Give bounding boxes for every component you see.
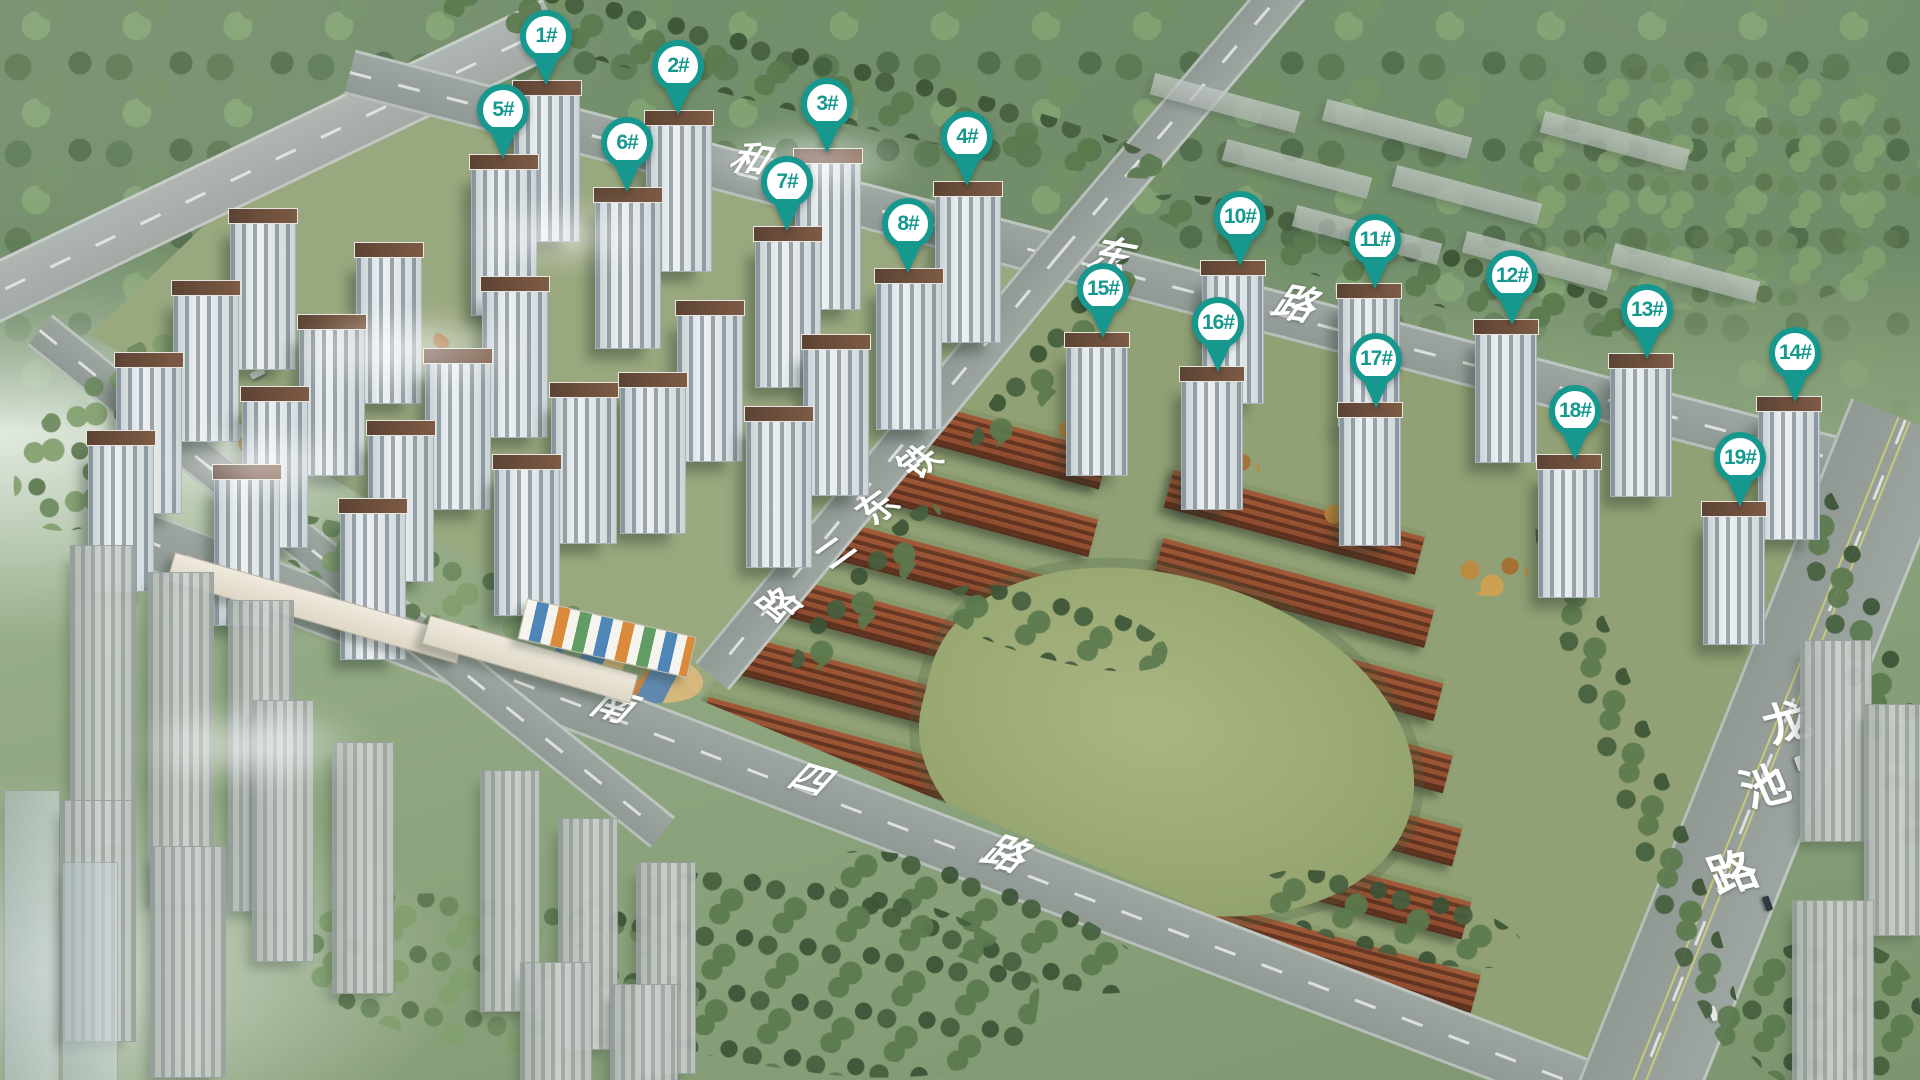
fog-streak	[90, 690, 410, 800]
pin-tail-icon	[812, 121, 842, 153]
pin-label: 19#	[1724, 446, 1756, 470]
building-pin-11[interactable]: 11#	[1349, 214, 1401, 289]
pin-label: 12#	[1496, 264, 1528, 288]
pin-label: 2#	[667, 54, 688, 78]
pin-label: 3#	[816, 92, 837, 116]
pin-tail-icon	[1725, 475, 1755, 507]
pin-label: 6#	[616, 131, 637, 155]
pin-label: 8#	[897, 212, 918, 236]
building-pin-2[interactable]: 2#	[652, 40, 704, 115]
fog-streak	[250, 300, 570, 400]
building-tower	[746, 416, 812, 568]
pin-tail-icon	[952, 154, 982, 186]
pin-tail-icon	[1361, 376, 1391, 408]
pin-label: 11#	[1360, 228, 1391, 252]
building-tower	[1181, 376, 1243, 510]
pin-tail-icon	[531, 53, 561, 85]
pin-label: 7#	[776, 170, 797, 194]
building-pin-3[interactable]: 3#	[801, 78, 853, 153]
fog-streak	[430, 195, 690, 275]
city-building	[150, 846, 226, 1078]
building-tower	[1475, 329, 1537, 463]
city-building	[1792, 900, 1874, 1080]
city-building	[1800, 640, 1872, 842]
building-pin-15[interactable]: 15#	[1077, 263, 1129, 338]
pin-tail-icon	[1088, 306, 1118, 338]
city-building	[610, 984, 678, 1080]
pin-tail-icon	[1203, 340, 1233, 372]
pin-tail-icon	[1560, 428, 1590, 460]
building-tower	[1339, 412, 1401, 546]
pin-tail-icon	[1360, 257, 1390, 289]
pin-tail-icon	[663, 83, 693, 115]
city-building	[62, 862, 118, 1080]
pin-label: 4#	[956, 125, 977, 149]
pin-tail-icon	[488, 127, 518, 159]
building-tower	[1610, 363, 1672, 497]
building-tower	[620, 382, 686, 534]
building-pin-16[interactable]: 16#	[1192, 297, 1244, 372]
building-pin-4[interactable]: 4#	[941, 111, 993, 186]
building-tower	[876, 278, 942, 430]
building-pin-8[interactable]: 8#	[882, 198, 934, 273]
pin-label: 1#	[535, 24, 556, 48]
city-building	[4, 790, 60, 1080]
pin-tail-icon	[1225, 234, 1255, 266]
pin-tail-icon	[1497, 293, 1527, 325]
pin-label: 10#	[1224, 205, 1256, 229]
building-tower	[1066, 342, 1128, 476]
pin-label: 18#	[1559, 399, 1591, 423]
tree-grove	[1458, 556, 1528, 596]
building-pin-18[interactable]: 18#	[1549, 385, 1601, 460]
fog-streak	[120, 420, 400, 510]
building-tower	[1538, 464, 1600, 598]
building-pin-19[interactable]: 19#	[1714, 432, 1766, 507]
building-pin-1[interactable]: 1#	[520, 10, 572, 85]
building-pin-5[interactable]: 5#	[477, 84, 529, 159]
pin-label: 15#	[1087, 277, 1119, 301]
pin-label: 16#	[1202, 311, 1234, 335]
building-pin-14[interactable]: 14#	[1769, 327, 1821, 402]
pin-tail-icon	[893, 241, 923, 273]
city-building	[520, 962, 592, 1080]
pin-tail-icon	[1632, 327, 1662, 359]
pin-label: 17#	[1360, 347, 1392, 371]
pin-tail-icon	[1780, 370, 1810, 402]
pin-tail-icon	[612, 160, 642, 192]
building-tower	[494, 464, 560, 616]
site-plan: 和东路铁东二路南四路龙池路 1#2#3#4#5#6#7#8#10#11#12#1…	[0, 0, 1920, 1080]
pin-label: 5#	[492, 98, 513, 122]
building-pin-7[interactable]: 7#	[761, 156, 813, 231]
building-pin-12[interactable]: 12#	[1486, 250, 1538, 325]
pin-label: 14#	[1779, 341, 1811, 365]
building-pin-17[interactable]: 17#	[1350, 333, 1402, 408]
building-tower	[1703, 511, 1765, 645]
building-tower	[935, 191, 1001, 343]
building-pin-10[interactable]: 10#	[1214, 191, 1266, 266]
building-pin-13[interactable]: 13#	[1621, 284, 1673, 359]
building-pin-6[interactable]: 6#	[601, 117, 653, 192]
pin-label: 13#	[1631, 298, 1663, 322]
building-tower	[1758, 406, 1820, 540]
pin-tail-icon	[772, 199, 802, 231]
